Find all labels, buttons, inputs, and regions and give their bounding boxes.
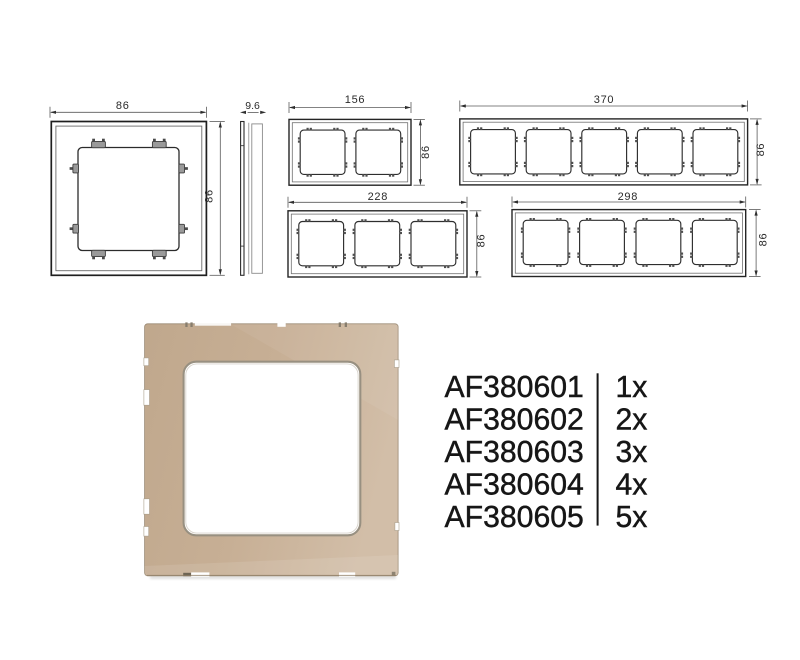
svg-text:1x: 1x — [616, 371, 648, 404]
svg-text:4x: 4x — [616, 468, 648, 501]
svg-text:228: 228 — [368, 191, 388, 203]
svg-text:86: 86 — [420, 145, 432, 159]
svg-text:3x: 3x — [616, 436, 648, 469]
svg-text:156: 156 — [345, 94, 365, 106]
svg-text:86: 86 — [757, 233, 769, 247]
svg-text:86: 86 — [475, 234, 487, 248]
svg-text:AF380602: AF380602 — [445, 404, 584, 437]
svg-text:86: 86 — [204, 189, 216, 203]
svg-text:86: 86 — [755, 143, 767, 157]
svg-text:AF380603: AF380603 — [445, 436, 584, 469]
svg-text:370: 370 — [594, 94, 614, 106]
svg-text:2x: 2x — [616, 404, 648, 437]
svg-text:298: 298 — [618, 191, 638, 203]
svg-text:AF380604: AF380604 — [445, 468, 584, 501]
svg-text:9.6: 9.6 — [245, 100, 260, 112]
svg-text:AF380605: AF380605 — [445, 501, 584, 534]
svg-text:5x: 5x — [616, 501, 648, 534]
svg-text:AF380601: AF380601 — [445, 371, 584, 404]
svg-text:86: 86 — [116, 100, 130, 112]
